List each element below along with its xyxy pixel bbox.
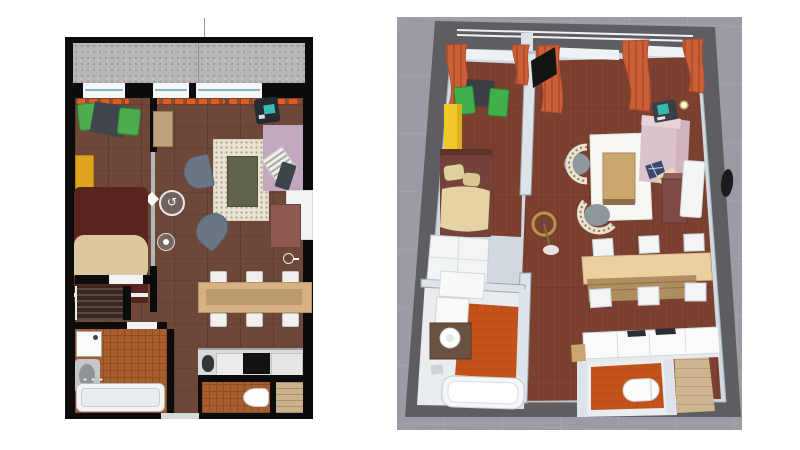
bedroom-chair <box>488 88 509 117</box>
window-glass-line <box>198 89 260 91</box>
counter-segment <box>271 353 303 376</box>
bathroom-right-wall <box>167 329 174 413</box>
console <box>680 160 705 217</box>
dining-table <box>198 282 312 313</box>
vanity <box>430 323 471 359</box>
counter-end-wood <box>571 344 586 362</box>
washer-knob <box>93 335 98 340</box>
window-bedroom <box>83 83 125 98</box>
entry-door-gap <box>161 413 199 419</box>
furniture-indicator-2[interactable] <box>283 253 294 264</box>
bathtub <box>441 376 524 410</box>
table-lamp-gold <box>680 101 688 109</box>
kitchen-sink <box>202 355 214 372</box>
dining-chair <box>282 313 299 327</box>
dining-chair <box>685 283 706 301</box>
computer-desk <box>651 99 678 123</box>
sliding-door-track[interactable] <box>151 152 155 266</box>
bath-mat <box>431 364 444 374</box>
cooktop <box>243 353 270 374</box>
dining-set <box>582 234 712 308</box>
yellow-cabinet <box>444 104 462 152</box>
dining-chair <box>589 288 611 307</box>
bathroom-door <box>127 322 157 329</box>
bed-blanket <box>440 186 490 231</box>
computer-screen <box>657 103 670 115</box>
computer-desk <box>253 96 280 124</box>
dining-chair <box>210 313 227 327</box>
toilet <box>622 378 659 402</box>
plan-reference-tick <box>204 18 205 37</box>
bathtub-basin <box>81 388 160 407</box>
camera-dot <box>163 239 169 245</box>
entry-floor <box>276 382 303 413</box>
bathtub <box>76 383 165 412</box>
bath-counter <box>439 271 485 299</box>
bed-pillow <box>443 164 465 182</box>
dining-chair <box>592 238 613 256</box>
floorplan-composite: { "meta": { "description": "Apartment fl… <box>0 0 800 450</box>
dining-chair <box>684 234 705 252</box>
bedroom-chair-right <box>117 107 142 136</box>
entry-floor <box>674 350 715 413</box>
rotate-control[interactable]: ↺ <box>159 190 185 216</box>
window-glass-line <box>85 89 123 91</box>
bed-pillow <box>462 172 480 187</box>
dresser <box>270 204 301 248</box>
bed <box>440 149 492 237</box>
window-living-left <box>153 83 189 98</box>
view-3d <box>397 17 742 430</box>
dining-chair <box>246 313 263 327</box>
kitchen-lower-wall <box>198 375 303 382</box>
indicator-arrow <box>293 258 299 260</box>
window-glass-line <box>155 89 187 91</box>
nook-wall <box>123 286 131 320</box>
curtain-living-left <box>151 99 225 104</box>
bedroom-door <box>109 275 143 284</box>
dining-table-inner <box>206 289 302 305</box>
balcony-floor <box>73 43 305 83</box>
cooktop <box>655 328 676 335</box>
balcony-divider <box>198 43 199 83</box>
bathtub-faucet-knobs <box>81 377 105 382</box>
keyboard <box>259 114 265 119</box>
computer-screen <box>263 104 275 114</box>
cooktop <box>627 330 646 337</box>
kitchen-counter <box>198 348 303 377</box>
counter-segment <box>216 353 244 376</box>
coffee-table <box>603 153 635 205</box>
camera-marker[interactable] <box>157 233 175 251</box>
tall-cabinet <box>153 111 173 147</box>
coffee-table <box>227 156 258 207</box>
washing-machine <box>76 331 102 357</box>
window-living-right <box>196 83 262 98</box>
dining-chair <box>638 287 660 306</box>
divider-wall-bottom <box>150 266 157 312</box>
plan-2d: ↺ <box>65 37 313 419</box>
dining-chair <box>639 235 660 253</box>
slatted-shelf <box>75 286 125 320</box>
toilet <box>243 388 269 407</box>
